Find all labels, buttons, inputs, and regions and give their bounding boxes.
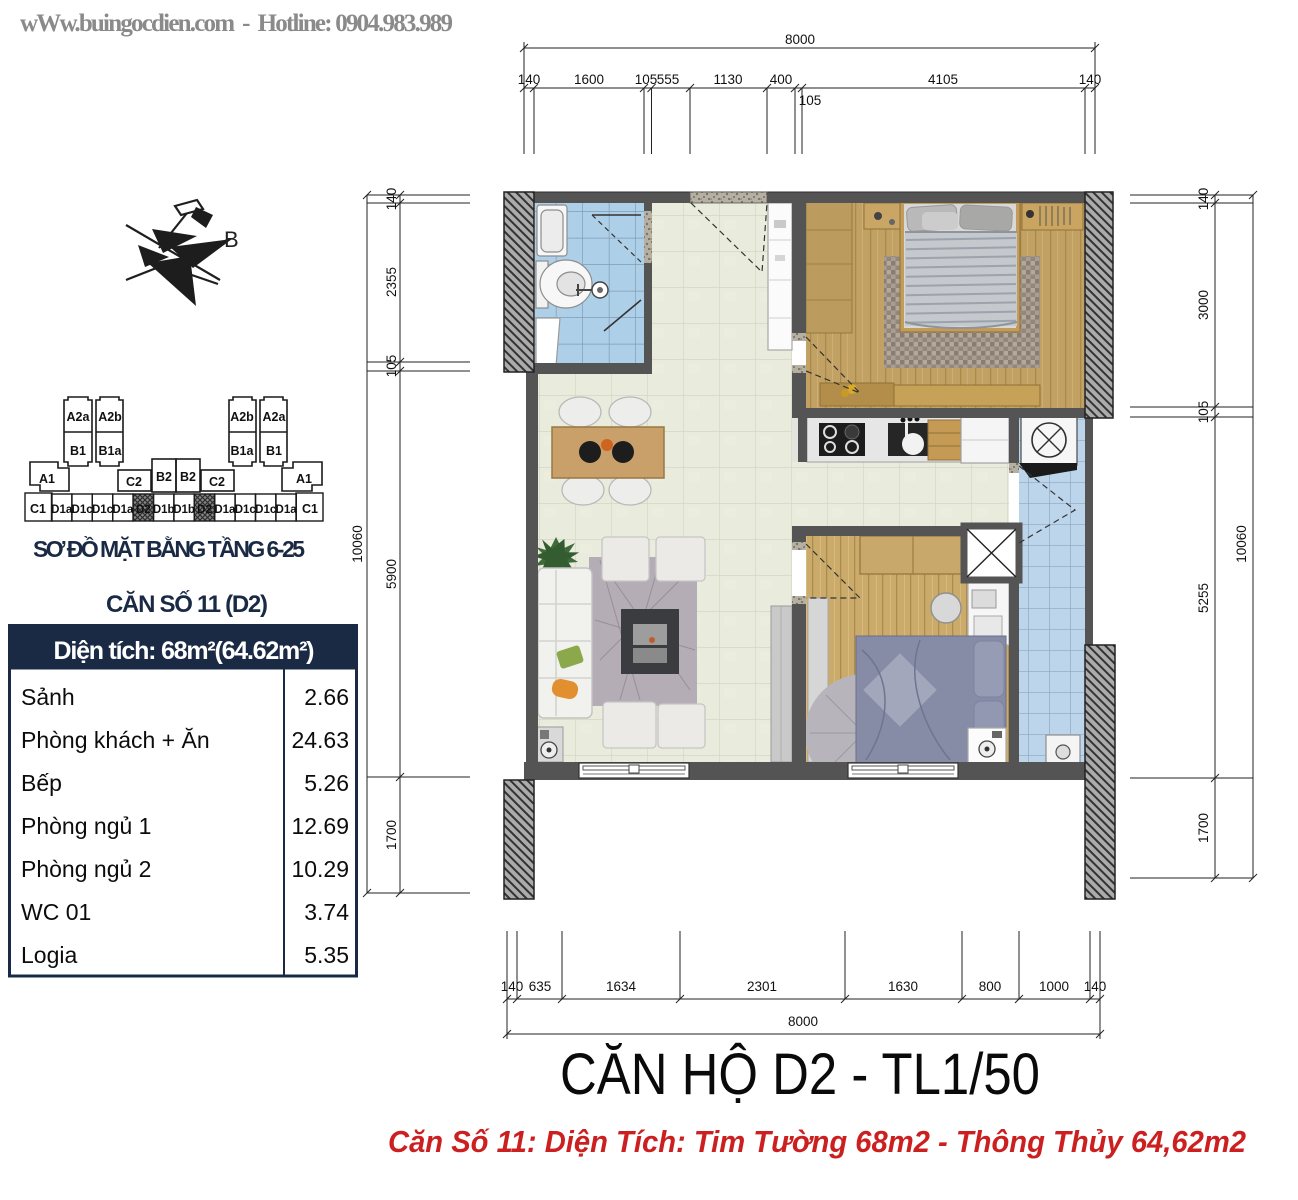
- svg-text:D1a: D1a: [112, 504, 134, 516]
- svg-text:wWw.buingocdien.com - Hotlin: wWw.buingocdien.com - Hotline: 0904.983.…: [20, 10, 453, 37]
- svg-text:A2a: A2a: [67, 410, 91, 424]
- svg-text:140: 140: [518, 72, 541, 87]
- svg-text:D1a: D1a: [276, 504, 298, 516]
- svg-text:24.63: 24.63: [291, 727, 349, 753]
- svg-text:A1: A1: [296, 472, 312, 486]
- svg-text:D1b: D1b: [173, 504, 195, 516]
- svg-text:800: 800: [979, 979, 1002, 994]
- svg-text:B1a: B1a: [231, 444, 255, 458]
- svg-text:WC 01: WC 01: [21, 899, 91, 925]
- svg-text:1700: 1700: [384, 820, 399, 850]
- svg-text:1600: 1600: [574, 72, 604, 87]
- svg-text:140: 140: [1079, 72, 1102, 87]
- svg-text:2.66: 2.66: [304, 684, 349, 710]
- svg-text:CĂN SỐ 11 (D2): CĂN SỐ 11 (D2): [106, 590, 268, 618]
- svg-text:5.26: 5.26: [304, 770, 349, 796]
- svg-text:4105: 4105: [928, 72, 958, 87]
- svg-text:1634: 1634: [606, 979, 637, 994]
- svg-text:B: B: [224, 227, 239, 252]
- svg-text:A2b: A2b: [230, 410, 254, 424]
- svg-text:B2: B2: [156, 470, 172, 484]
- svg-text:C1: C1: [30, 502, 46, 516]
- svg-text:105: 105: [384, 355, 399, 378]
- svg-text:1000: 1000: [1039, 979, 1069, 994]
- svg-text:B1: B1: [266, 444, 282, 458]
- svg-text:2355: 2355: [384, 267, 399, 297]
- svg-text:C2: C2: [126, 475, 142, 489]
- svg-text:3000: 3000: [1196, 290, 1211, 320]
- svg-text:Phòng khách + Ăn: Phòng khách + Ăn: [21, 727, 210, 753]
- svg-text:B1: B1: [70, 444, 86, 458]
- svg-text:Phòng ngủ 2: Phòng ngủ 2: [21, 856, 151, 882]
- svg-text:400: 400: [770, 72, 793, 87]
- svg-text:12.69: 12.69: [291, 813, 349, 839]
- svg-text:5.35: 5.35: [304, 942, 349, 968]
- svg-text:10.29: 10.29: [291, 856, 349, 882]
- svg-text:B1a: B1a: [99, 444, 123, 458]
- svg-text:140: 140: [384, 188, 399, 211]
- svg-text:8000: 8000: [785, 32, 815, 47]
- svg-text:Logia: Logia: [21, 942, 77, 968]
- svg-text:D1b: D1b: [153, 504, 175, 516]
- svg-text:D2: D2: [197, 504, 212, 516]
- svg-text:D2: D2: [136, 504, 151, 516]
- svg-text:C2: C2: [209, 475, 225, 489]
- svg-text:D1a: D1a: [214, 504, 236, 516]
- svg-text:A1: A1: [39, 472, 55, 486]
- svg-text:1700: 1700: [1196, 813, 1211, 843]
- svg-text:3.74: 3.74: [304, 899, 349, 925]
- svg-text:635: 635: [529, 979, 552, 994]
- svg-text:D1c: D1c: [235, 504, 257, 516]
- svg-text:10060: 10060: [1234, 525, 1249, 563]
- svg-text:8000: 8000: [788, 1014, 818, 1029]
- svg-text:D1c: D1c: [72, 504, 94, 516]
- svg-text:1630: 1630: [888, 979, 918, 994]
- svg-text:10060: 10060: [350, 525, 365, 563]
- svg-text:A2b: A2b: [98, 410, 122, 424]
- svg-text:5255: 5255: [1196, 583, 1211, 613]
- svg-text:B2: B2: [180, 470, 196, 484]
- svg-text:555: 555: [657, 72, 680, 87]
- svg-text:SƠ ĐỒ MẶT BẰNG TẦNG 6-25: SƠ ĐỒ MẶT BẰNG TẦNG 6-25: [33, 535, 305, 562]
- svg-text:105: 105: [1196, 401, 1211, 424]
- svg-text:140: 140: [1084, 979, 1107, 994]
- svg-text:D1a: D1a: [51, 504, 73, 516]
- svg-text:105: 105: [799, 93, 822, 108]
- svg-text:1130: 1130: [713, 72, 742, 87]
- svg-text:A2a: A2a: [263, 410, 287, 424]
- svg-text:5900: 5900: [384, 559, 399, 589]
- svg-text:C1: C1: [302, 502, 318, 516]
- svg-text:2301: 2301: [747, 979, 777, 994]
- svg-text:CĂN HỘ D2 - TL1/50: CĂN HỘ D2 - TL1/50: [560, 1042, 1040, 1107]
- svg-text:Diện tích: 68m²(64.62m²): Diện tích: 68m²(64.62m²): [54, 637, 315, 665]
- svg-text:Sảnh: Sảnh: [21, 684, 75, 710]
- svg-text:140: 140: [1196, 188, 1211, 211]
- svg-text:Bếp: Bếp: [21, 770, 62, 796]
- svg-text:Phòng ngủ 1: Phòng ngủ 1: [21, 813, 151, 839]
- svg-text:D1c: D1c: [92, 504, 114, 516]
- svg-text:105: 105: [635, 72, 658, 87]
- svg-text:D1c: D1c: [255, 504, 277, 516]
- svg-text:Căn Số 11: Diện Tích: Tim Tườn: Căn Số 11: Diện Tích: Tim Tường 68m2 - T…: [388, 1124, 1246, 1159]
- svg-text:140: 140: [501, 979, 524, 994]
